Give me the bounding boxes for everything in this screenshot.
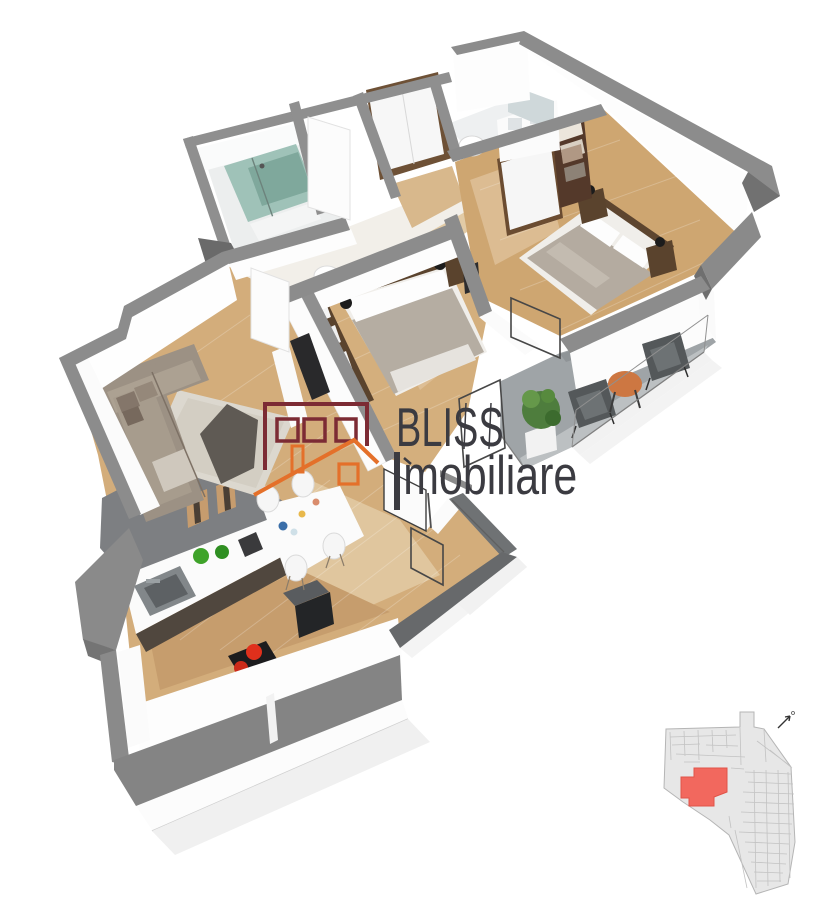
svg-text:mobiliare: mobiliare (403, 445, 577, 506)
